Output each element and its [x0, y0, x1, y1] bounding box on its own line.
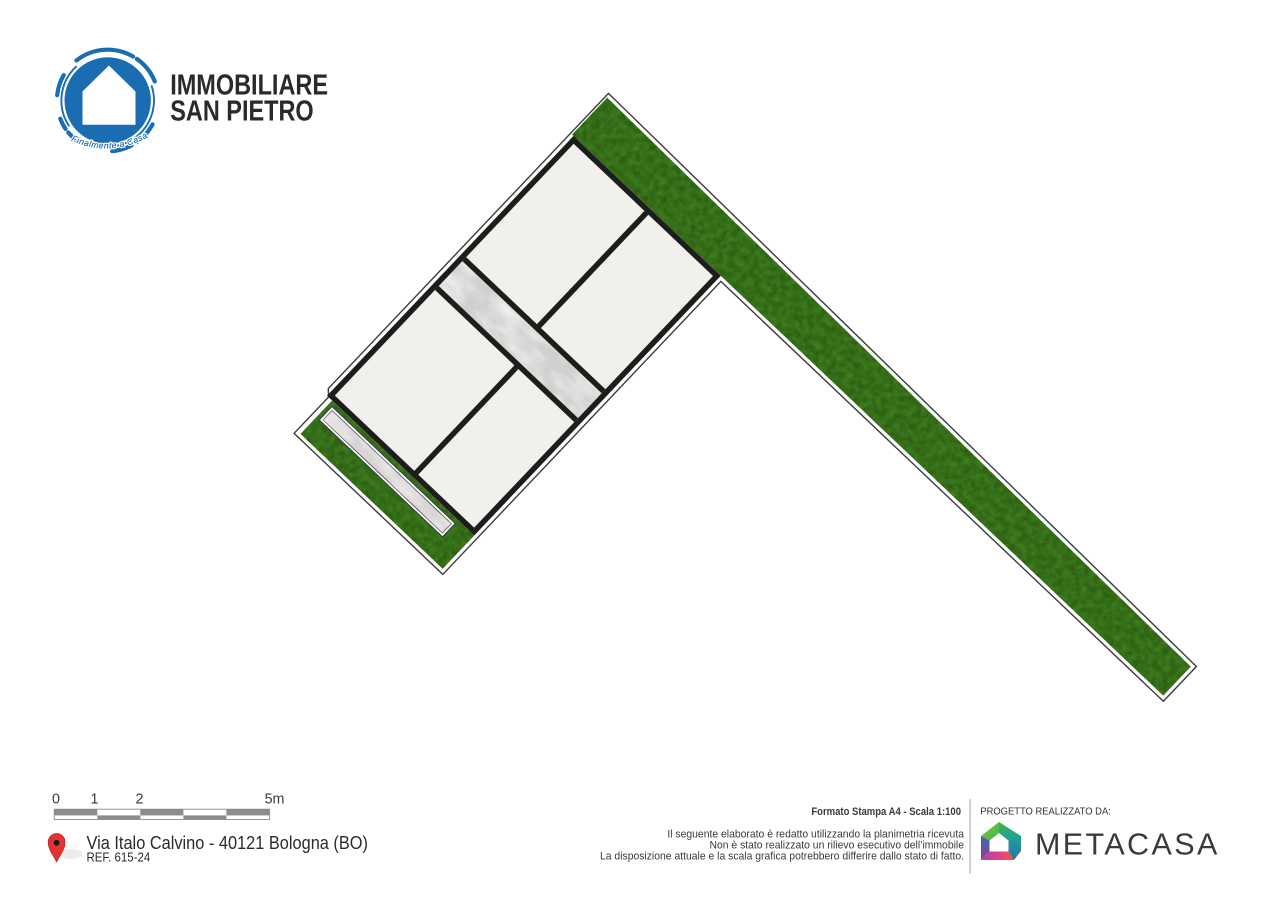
- svg-text:1: 1: [91, 792, 99, 808]
- svg-text:La disposizione attuale e la s: La disposizione attuale e la scala grafi…: [600, 850, 964, 862]
- svg-text:5m: 5m: [265, 792, 285, 808]
- svg-text:Formato Stampa A4 - Scala 1:10: Formato Stampa A4 - Scala 1:100: [811, 806, 961, 818]
- svg-text:0: 0: [52, 792, 60, 808]
- svg-text:SAN PIETRO: SAN PIETRO: [170, 94, 313, 127]
- svg-text:2: 2: [136, 792, 144, 808]
- svg-text:REF. 615-24: REF. 615-24: [87, 850, 151, 865]
- svg-text:METACASA: METACASA: [1035, 828, 1220, 862]
- svg-text:PROGETTO REALIZZATO DA:: PROGETTO REALIZZATO DA:: [980, 806, 1111, 817]
